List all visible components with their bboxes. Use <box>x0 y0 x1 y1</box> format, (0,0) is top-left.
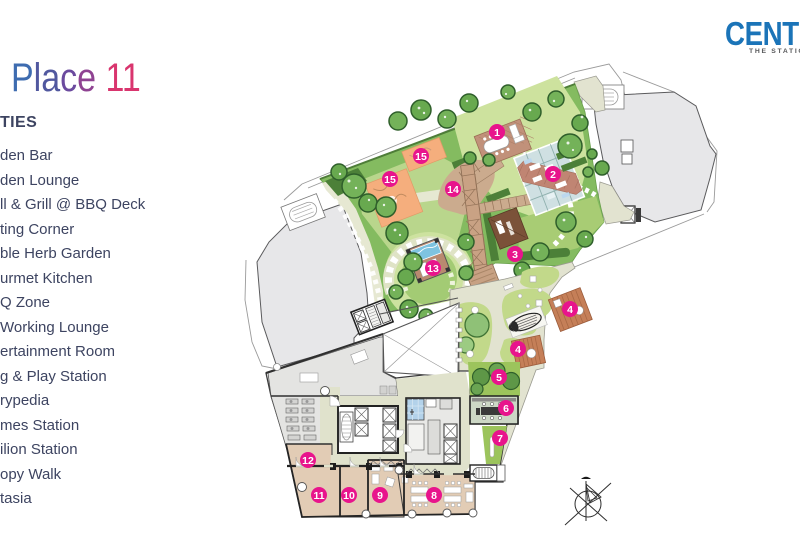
svg-text:6: 6 <box>503 403 509 415</box>
svg-text:9: 9 <box>377 490 383 502</box>
svg-text:11: 11 <box>313 490 324 502</box>
svg-text:8: 8 <box>431 490 437 502</box>
svg-text:2: 2 <box>550 169 556 181</box>
svg-text:3: 3 <box>512 249 518 261</box>
svg-text:12: 12 <box>302 455 314 467</box>
svg-text:10: 10 <box>343 490 355 502</box>
svg-text:4: 4 <box>567 304 573 316</box>
svg-text:7: 7 <box>497 433 503 445</box>
svg-text:1: 1 <box>494 127 500 139</box>
svg-text:4: 4 <box>515 344 521 356</box>
svg-text:15: 15 <box>415 151 427 163</box>
svg-text:13: 13 <box>427 263 439 275</box>
svg-text:14: 14 <box>447 184 459 196</box>
svg-text:15: 15 <box>384 174 396 186</box>
svg-text:5: 5 <box>496 372 502 384</box>
